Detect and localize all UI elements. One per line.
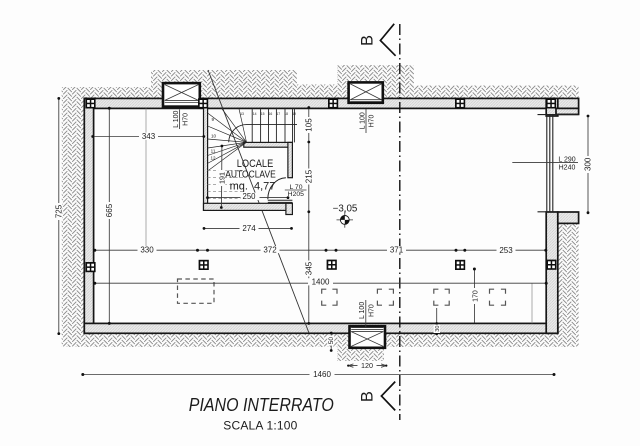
svg-text:1400: 1400 xyxy=(312,278,330,287)
svg-text:170: 170 xyxy=(472,290,479,302)
svg-text:372: 372 xyxy=(263,246,277,255)
svg-text:AUTOCLAVE: AUTOCLAVE xyxy=(225,169,276,181)
svg-text:371: 371 xyxy=(390,246,404,255)
svg-text:345: 345 xyxy=(304,261,313,275)
svg-text:215: 215 xyxy=(304,169,313,183)
svg-text:343: 343 xyxy=(142,132,156,141)
svg-text:300: 300 xyxy=(584,157,593,171)
svg-text:L 100: L 100 xyxy=(173,110,180,127)
svg-text:665: 665 xyxy=(105,203,114,217)
svg-text:50: 50 xyxy=(328,337,335,345)
svg-text:105: 105 xyxy=(304,118,313,132)
svg-text:H70: H70 xyxy=(369,304,376,317)
svg-text:H70: H70 xyxy=(182,113,189,126)
svg-text:H70: H70 xyxy=(369,114,376,127)
svg-text:−3,05: −3,05 xyxy=(333,203,358,214)
svg-text:L 100: L 100 xyxy=(359,112,366,129)
svg-text:274: 274 xyxy=(242,224,256,233)
svg-text:16: 16 xyxy=(269,112,273,116)
svg-text:PIANO INTERRATO: PIANO INTERRATO xyxy=(189,394,334,415)
svg-text:H205: H205 xyxy=(288,191,304,198)
svg-text:253: 253 xyxy=(499,246,513,255)
svg-text:L 290: L 290 xyxy=(558,156,575,163)
svg-text:B: B xyxy=(358,391,376,402)
svg-text:10: 10 xyxy=(211,133,217,138)
svg-text:L 100: L 100 xyxy=(359,302,366,319)
svg-text:L 70: L 70 xyxy=(290,184,303,191)
svg-text:H240: H240 xyxy=(559,165,576,172)
svg-text:19: 19 xyxy=(292,112,296,116)
svg-text:SCALA 1:100: SCALA 1:100 xyxy=(223,419,297,433)
svg-text:120: 120 xyxy=(361,361,373,370)
svg-text:1460: 1460 xyxy=(313,370,331,379)
svg-text:17: 17 xyxy=(276,112,280,116)
svg-text:9: 9 xyxy=(212,117,215,122)
svg-text:11: 11 xyxy=(211,148,216,153)
svg-text:mq. 4,77: mq. 4,77 xyxy=(230,180,276,192)
svg-text:13: 13 xyxy=(240,112,244,116)
svg-text:725: 725 xyxy=(54,204,63,218)
svg-text:250: 250 xyxy=(242,192,256,201)
svg-text:15: 15 xyxy=(261,112,265,116)
svg-text:14: 14 xyxy=(253,112,257,116)
svg-text:12: 12 xyxy=(210,156,216,161)
svg-text:18: 18 xyxy=(284,112,288,116)
svg-text:30: 30 xyxy=(435,325,441,331)
svg-text:330: 330 xyxy=(140,246,154,255)
svg-text:B: B xyxy=(358,35,376,46)
